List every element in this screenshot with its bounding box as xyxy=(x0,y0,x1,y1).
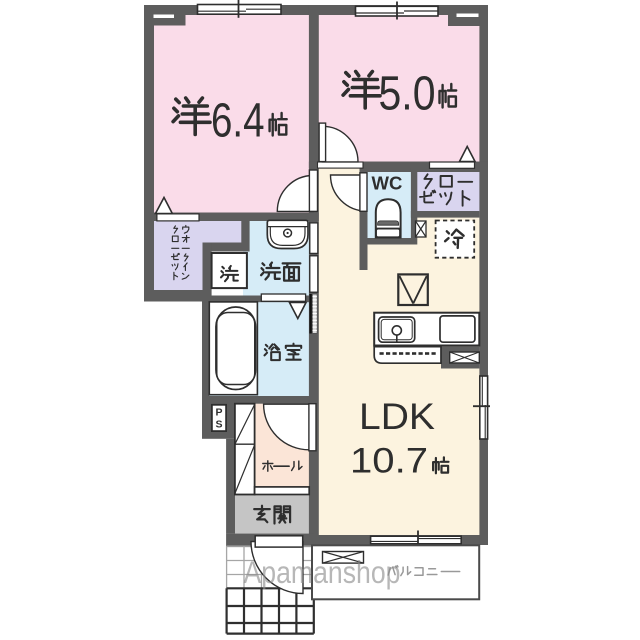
svg-text:P: P xyxy=(215,407,222,419)
svg-text:10.7: 10.7 xyxy=(350,442,428,481)
svg-text:6.4: 6.4 xyxy=(211,93,265,147)
svg-text:LDK: LDK xyxy=(359,396,435,437)
svg-text:5.0: 5.0 xyxy=(379,67,436,121)
svg-text:Apamanshop: Apamanshop xyxy=(244,554,401,590)
svg-text:WC: WC xyxy=(372,173,403,194)
svg-text:S: S xyxy=(215,419,222,431)
